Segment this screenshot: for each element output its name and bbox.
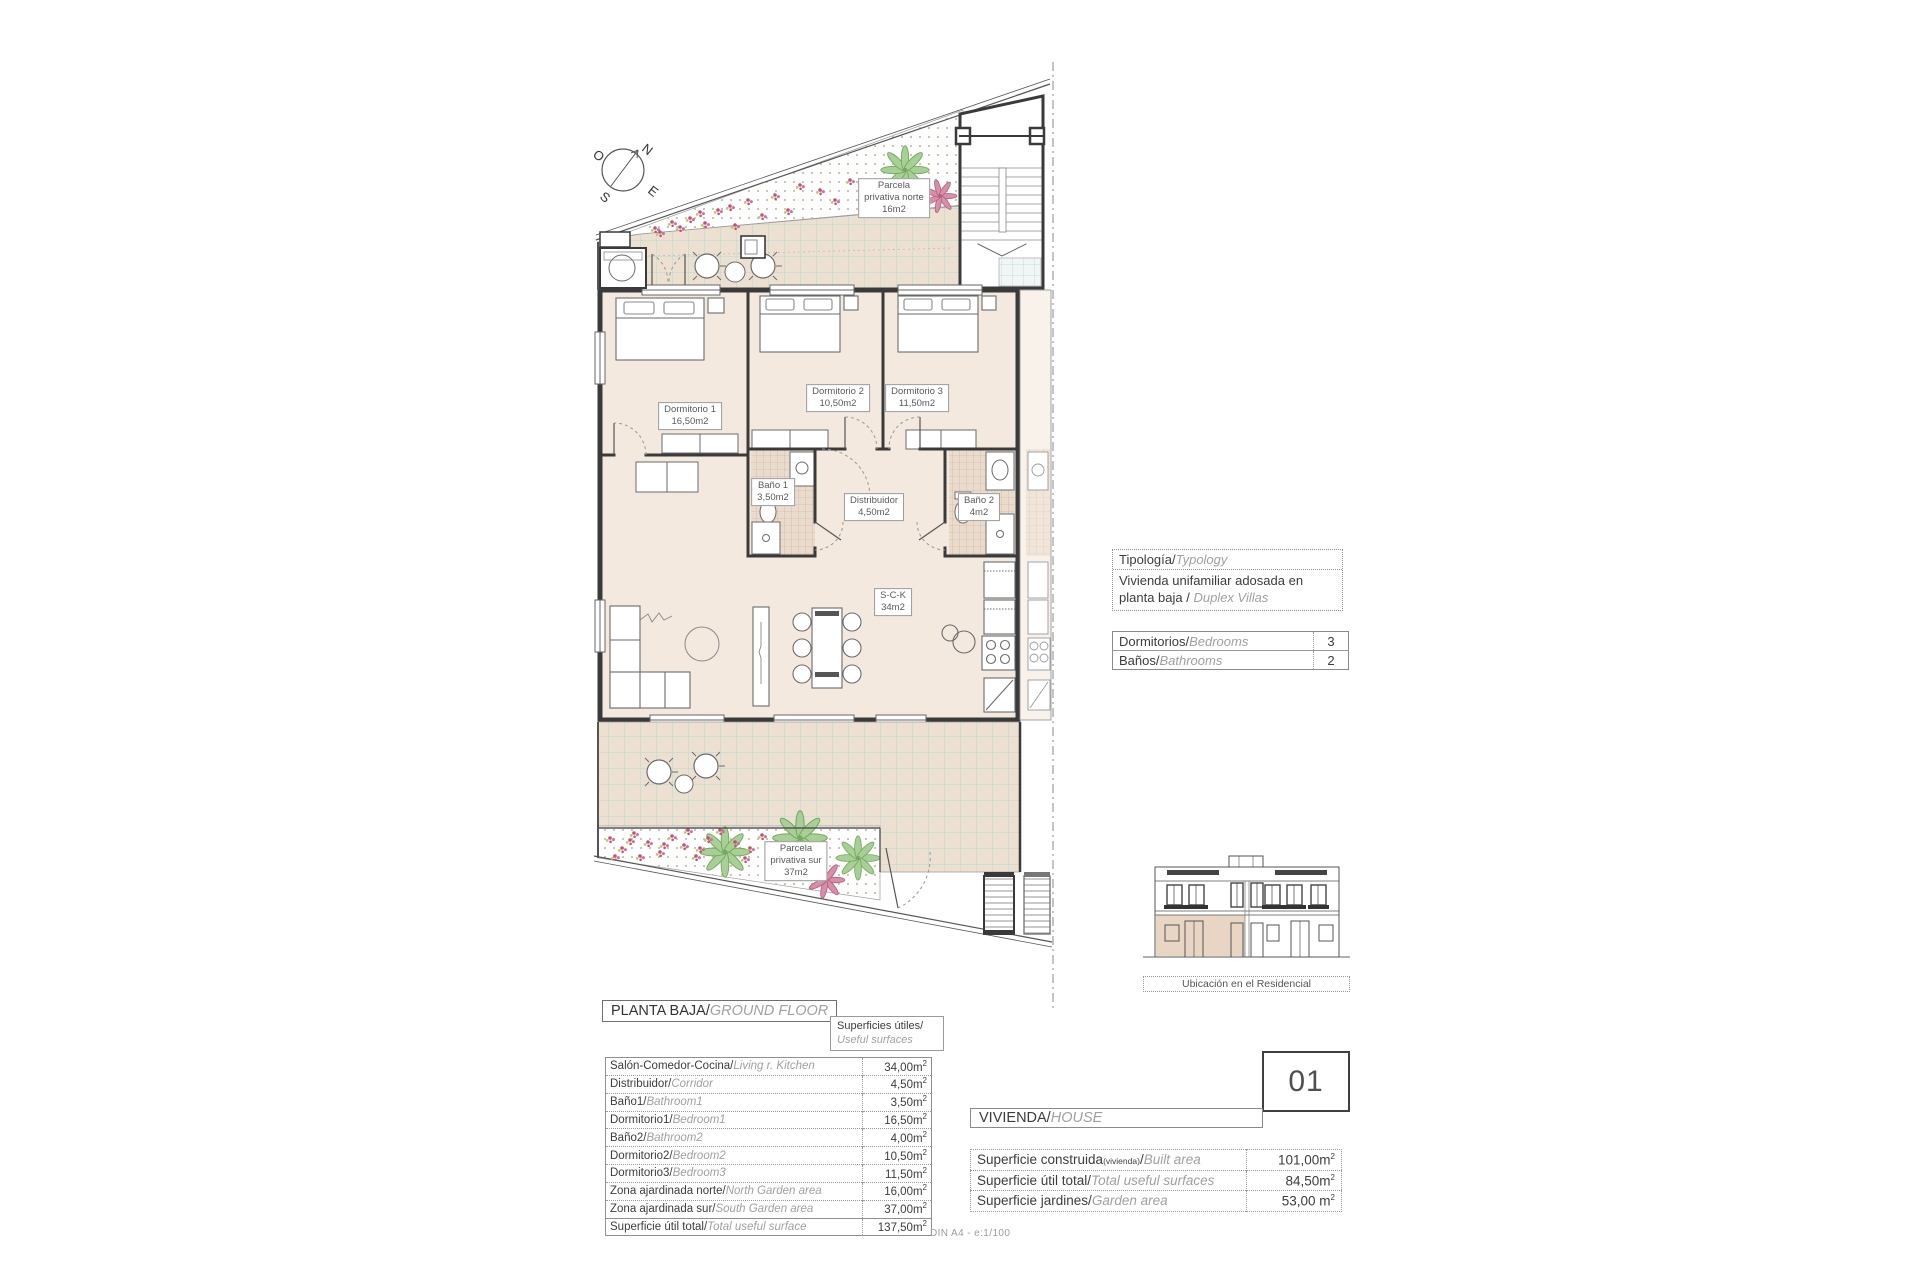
typology-header: Tipología/Typology — [1113, 550, 1342, 570]
typology-box: Tipología/Typology Vivienda unifamiliar … — [1112, 549, 1343, 611]
tv-unit — [753, 607, 769, 706]
compass-rose: N E S O — [590, 141, 661, 206]
label-parcela-sur: Parcela privativa sur 37m2 — [764, 841, 827, 881]
useful-surfaces-header: Superficies útiles/ Useful surfaces — [830, 1016, 944, 1051]
surfaces-table: Salón-Comedor-Cocina/Living r. Kitchen 3… — [605, 1057, 932, 1236]
elevation-drawing — [1143, 851, 1350, 971]
counts-table: Dormitorios/Bedrooms 3 Baños/Bathrooms 2 — [1112, 631, 1349, 670]
label-parcela-norte: Parcela privativa norte 16m2 — [858, 178, 930, 218]
label-bano1: Baño 1 3,50m2 — [751, 478, 795, 506]
label-bano2: Baño 2 4m2 — [958, 493, 1000, 521]
plan-sheet: N E S O Parcela privativa norte 16m2 Par… — [0, 0, 1920, 1280]
label-distribuidor: Distribuidor 4,50m2 — [844, 493, 904, 521]
palm-plant — [836, 836, 880, 880]
dining-set — [793, 608, 861, 688]
neighbour-unit-sliver — [1020, 290, 1051, 720]
table-row: Superficie jardines/Garden area 53,00 m2 — [971, 1191, 1342, 1212]
compass-s: S — [597, 189, 613, 206]
table-row-total: Superficie útil total/Total useful surfa… — [606, 1218, 932, 1236]
staircase — [956, 96, 1044, 288]
compass-e: E — [645, 183, 661, 200]
table-row: Salón-Comedor-Cocina/Living r. Kitchen 3… — [606, 1058, 932, 1076]
table-row: Superficie útil total/Total useful surfa… — [971, 1170, 1342, 1191]
table-row: Baño1/Bathroom1 3,50m2 — [606, 1093, 932, 1111]
table-row: Zona ajardinada norte/North Garden area … — [606, 1182, 932, 1200]
label-dormitorio2: Dormitorio 2 10,50m2 — [806, 384, 870, 412]
table-row: Baños/Bathrooms 2 — [1113, 651, 1349, 670]
ground-floor-title: PLANTA BAJA/GROUND FLOOR — [602, 1000, 837, 1022]
table-row: Superficie construida(vivienda)/Built ar… — [971, 1150, 1342, 1171]
house-surfaces-table: Superficie construida(vivienda)/Built ar… — [970, 1149, 1342, 1212]
table-row: Zona ajardinada sur/South Garden area 37… — [606, 1200, 932, 1218]
table-row: Dormitorios/Bedrooms 3 — [1113, 632, 1349, 651]
table-row: Baño2/Bathroom2 4,00m2 — [606, 1129, 932, 1147]
label-dormitorio1: Dormitorio 1 16,50m2 — [658, 402, 722, 430]
scale-note: DIN A4 - e:1/100 — [930, 1228, 1010, 1239]
palm-plant — [700, 827, 750, 877]
label-sck: S-C-K 34m2 — [874, 588, 912, 616]
house-number: 01 — [1262, 1051, 1350, 1112]
elevation-caption: Ubicación en el Residencial — [1143, 976, 1350, 992]
table-row: Dormitorio2/Bedroom2 10,50m2 — [606, 1147, 932, 1165]
table-row: Distribuidor/Corridor 4,50m2 — [606, 1075, 932, 1093]
bathrooms-count: 2 — [1314, 651, 1349, 670]
label-dormitorio3: Dormitorio 3 11,50m2 — [885, 384, 949, 412]
table-row: Dormitorio1/Bedroom1 16,50m2 — [606, 1111, 932, 1129]
typology-body: Vivienda unifamiliar adosada en planta b… — [1113, 570, 1342, 610]
bedrooms-count: 3 — [1314, 632, 1349, 651]
compass-n: N — [639, 141, 656, 159]
table-row: Dormitorio3/Bedroom3 11,50m2 — [606, 1165, 932, 1183]
house-label: VIVIENDA/HOUSE — [970, 1108, 1263, 1128]
